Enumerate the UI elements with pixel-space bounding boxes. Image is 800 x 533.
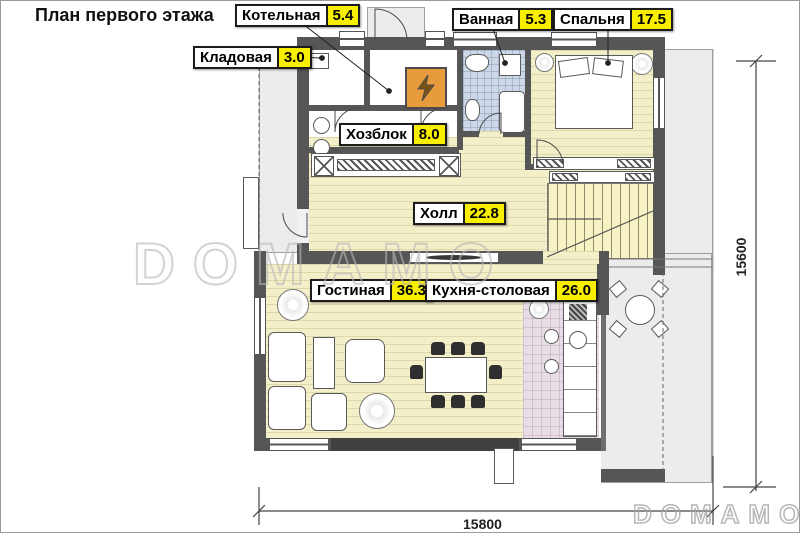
dining-chair [451,395,465,408]
armchair [311,393,347,431]
opening-hall-kitchen [543,251,599,264]
washing-machine [499,54,521,76]
wall-east-upper [653,37,665,275]
window-living-south [269,438,329,451]
door-opening-entry [369,37,409,50]
living-rug [313,337,335,389]
coffee-table [345,339,385,383]
wardrobe-section-left [536,159,564,168]
hall-counter-hatch [337,159,435,171]
staircase [547,183,655,259]
kitchen-hob [569,304,587,320]
room-name: Котельная [235,4,328,27]
window-bathroom [453,32,497,47]
laundry-machine-1 [313,117,330,134]
bar-stool-2 [544,359,559,374]
room-name: Кухня-столовая [425,279,557,302]
lightning-icon [416,75,436,101]
room-label-kladovaya: Кладовая 3.0 [193,46,312,69]
room-label-holl: Холл 22.8 [413,202,506,225]
stairs-wardrobe-right [625,173,651,181]
window-bedroom-east [653,77,665,129]
bathroom-sink [465,54,489,72]
room-label-vannaya: Ванная 5.3 [452,8,553,31]
terrace-table [625,295,655,325]
plant-living-bottom [359,393,395,429]
door-opening-bath [479,131,503,137]
room-label-gostinaya: Гостиная 36.3 [310,279,433,302]
dimension-bottom: 15800 [463,516,502,532]
floor-plan-canvas: План первого этажа Котельная 5.4 Ванная … [0,0,800,533]
wall-bath-bedroom [525,50,531,170]
room-area: 5.3 [520,8,553,31]
kitchen-sink [569,331,587,349]
sliding-door-south [331,438,519,451]
dining-chair [489,365,502,379]
toilet [465,99,480,121]
door-opening-porch [297,209,309,243]
room-label-kuhnya: Кухня-столовая 26.0 [425,279,598,302]
terrace-south-stub [601,469,665,482]
tv-screen [426,255,481,260]
window-bedroom-north [551,32,597,47]
dim-slash-rt [750,55,762,67]
wall-kitchen-terrace-thin [601,315,606,451]
window-living-west [254,297,266,355]
plant-kitchen [529,299,549,319]
room-area: 3.0 [279,46,312,69]
room-label-hozblok: Хозблок 8.0 [339,123,447,146]
room-area: 22.8 [465,202,506,225]
sofa-bottom [268,386,306,430]
door-opening-storage [333,105,357,111]
dining-chair [410,365,423,379]
storage-shelf [311,53,329,69]
room-name: Холл [413,202,465,225]
dim-slash-bl [253,505,265,517]
room-name: Кладовая [193,46,279,69]
plant-living-top [277,289,309,321]
dining-chair [431,395,445,408]
wall-storage-boiler [364,50,370,105]
room-name: Хозблок [339,123,414,146]
wardrobe-section-right [617,159,651,168]
room-area: 5.4 [328,4,361,27]
dimension-right: 15600 [733,235,749,279]
dining-chair [451,342,465,355]
plant-bedroom-left [535,53,554,72]
watermark-corner: DOMAMO [633,499,800,530]
bed-pillow-right [592,57,624,78]
sofa-top [268,332,306,382]
boiler-unit [405,67,447,109]
window-entry-right [425,31,445,47]
page-title: План первого этажа [35,5,214,26]
window-kitchen-south [521,438,577,451]
room-name: Гостиная [310,279,392,302]
dining-chair [431,342,445,355]
hall-counter-box-left [314,156,334,176]
room-name: Спальня [553,8,632,31]
dining-chair [471,342,485,355]
entry-landing-top [367,7,425,41]
room-area: 8.0 [414,123,447,146]
stairs-wardrobe-left [552,173,578,181]
dining-chair [471,395,485,408]
room-label-kotelnaya: Котельная 5.4 [235,4,360,27]
porch-step [243,177,259,249]
dining-table [425,357,487,393]
path-column-south [494,448,514,484]
bar-stool-1 [544,329,559,344]
plant-bedroom-right [631,53,653,75]
dim-slash-rb [750,481,762,493]
room-name: Ванная [452,8,520,31]
room-area: 17.5 [632,8,673,31]
window-entry-left [339,31,365,47]
room-label-spalnya: Спальня 17.5 [553,8,673,31]
bathtub [499,91,525,133]
room-area: 26.0 [557,279,598,302]
hall-counter-box-right [439,156,459,176]
dim-slash-br [707,505,719,517]
